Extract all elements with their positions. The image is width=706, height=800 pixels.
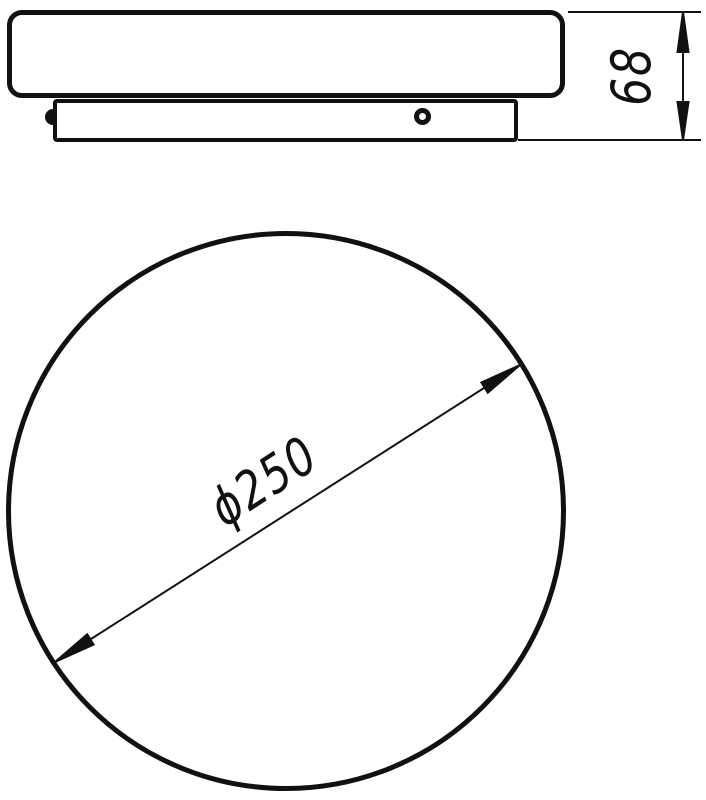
height-dimension-label: 68 [605,46,659,106]
dimension-lines [0,0,706,800]
arrowhead-down-icon [678,102,689,140]
diameter-dim-line [55,365,520,662]
arrowhead-sw-icon [55,634,94,662]
technical-drawing: 68 ϕ250 [0,0,706,800]
arrowhead-up-icon [678,12,689,52]
arrowhead-ne-icon [481,365,520,393]
